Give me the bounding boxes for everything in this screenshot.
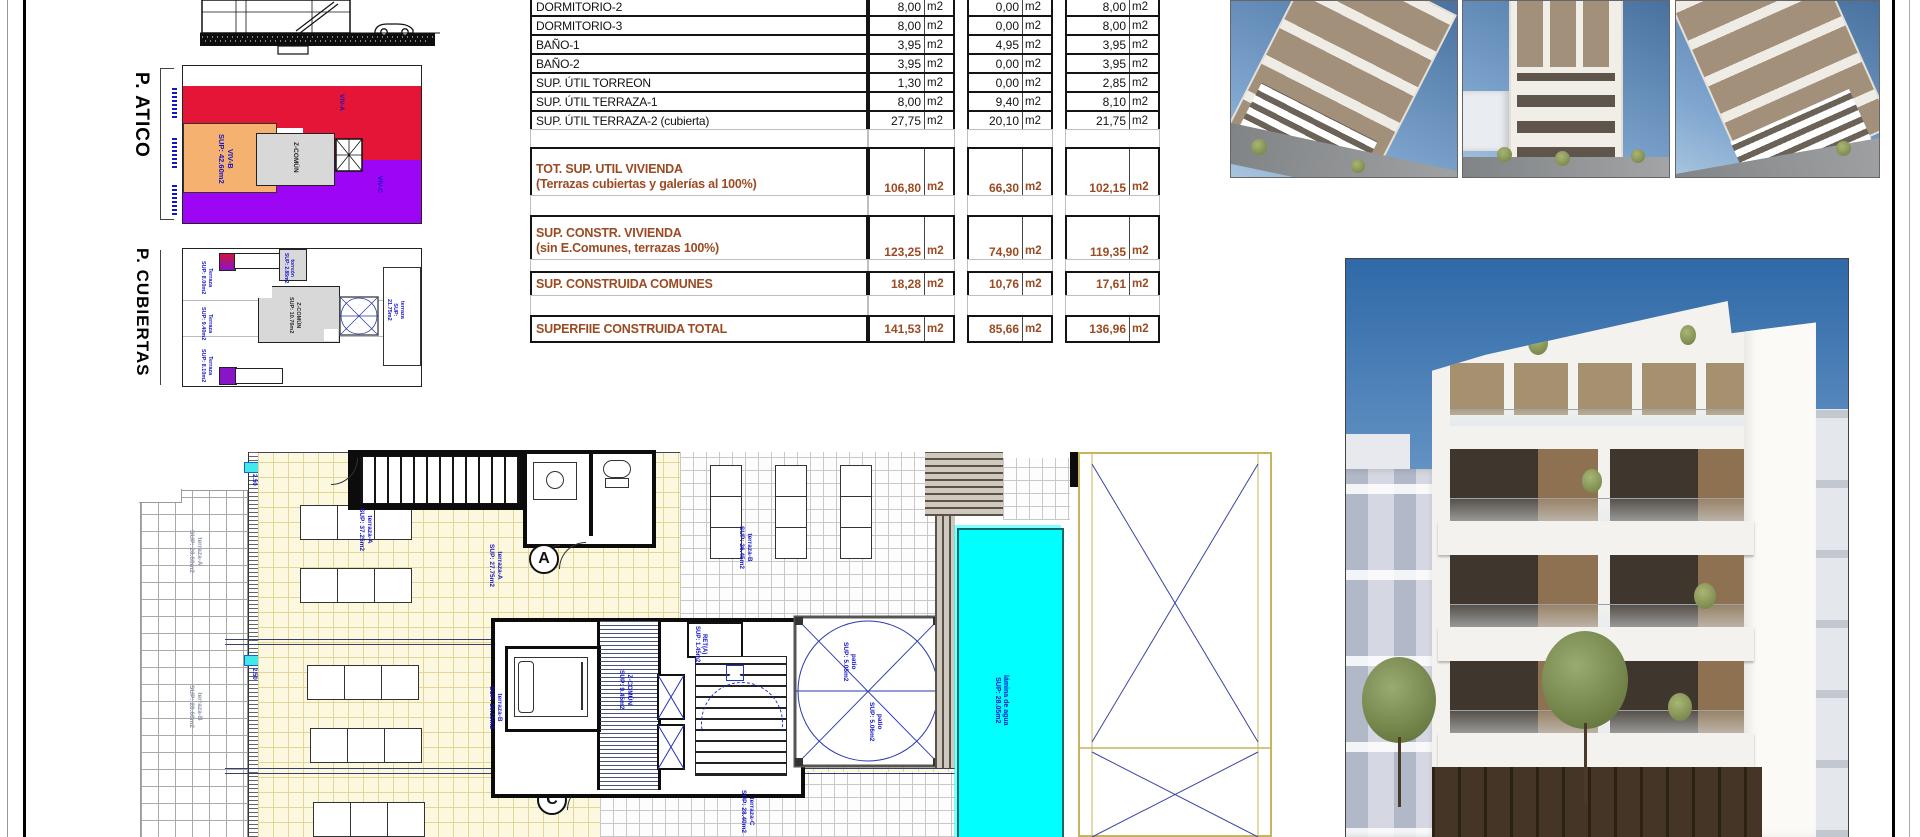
bathroom-top [523,450,656,548]
tree-icon [1582,469,1602,493]
plan-label: terraza-A SUP: 37.25m2 [357,508,373,551]
tree-icon [1631,149,1645,163]
table-total-row: SUPERFIIE CONSTRUIDA TOTAL 141,53m2 85,6… [530,315,1170,343]
facade-render [1345,258,1849,837]
cubiertas-title: P. CUBIERTAS [132,248,152,377]
staircase-top [360,456,520,504]
table-row: SUP. ÚTIL TORREON 1,30m2 0,00m2 2,85m2 [530,72,1170,93]
aerial-render-1 [1230,0,1458,178]
plan-label: terraza-B SUP: 20.15m2 [487,686,503,729]
dimension-tick [172,88,177,118]
roof-label: Terraza SUP: 9.40m2 [200,307,213,340]
viv-c-label: VIV-C [375,176,383,193]
sun-lounger [313,802,425,837]
atico-title: P. ATICO [130,72,152,158]
table-total-row: TOT. SUP. UTIL VIVIENDA (Terrazas cubier… [530,147,1170,197]
atico-color-plan: VIV-A VIV-B SUP: 42.60m2 Z-COMÚN VIV-C [182,65,422,224]
plan-label: Z-COMÚN SUP: 9.45m2 [617,670,633,709]
atico-common-label: Z-COMÚN [291,142,299,173]
pool-deck [925,452,1003,516]
sun-lounger [300,505,412,540]
tree-icon [1251,139,1267,155]
tree-icon [1836,141,1851,156]
plan-label: terraza-B SUP: 26.45m2 [737,526,753,569]
sun-lounger [300,568,412,603]
roof-patio-icon [339,296,379,336]
service-core: Z-COMÚN SUP: 9.45m2 RET(A) SUP: 1.45m2 [491,618,805,798]
architectural-drawing-sheet: P. ATICO VIV-A VIV-B SUP: 42.60m2 Z-COMÚ… [0,0,1920,837]
sheet-border-outer-right [1909,0,1910,837]
aerial-render-3 [1675,0,1880,178]
shower-tray [533,462,577,500]
plan-label: terraza-A SUP: 27.75m2 [487,544,503,587]
tree-icon [1555,151,1570,166]
table-spacer-row [530,195,1170,217]
plan-label: RET(A) SUP: 1.45m2 [693,626,707,662]
building-section-drawing [200,0,440,62]
tree-icon [1497,147,1512,162]
lightwell-strip [1078,452,1272,837]
unit-marker-a: A [529,544,559,574]
pool-deck-side [935,516,955,768]
dimension-tick [172,138,177,168]
table-total-row: SUP. CONSTRUIDA COMUNES 18,28m2 10,76m2 … [530,271,1170,297]
roof-label: terraza SUP: 21.75m2 [385,299,405,321]
plan-label: patio SUP: 5.05m2 [841,642,857,681]
roof-label: Z-COMÚN SUP: 10.76m2 [288,297,301,333]
viv-a-label: VIV-A [337,94,345,111]
surface-area-table: DORMITORIO-2 8,00m2 0,00m2 8,00m2 DORMIT… [530,0,1170,343]
plan-label: 2.50 [250,474,257,486]
plan-label: terraza-C SUP: 28.40m2 [739,790,755,833]
dimension-tick [172,185,177,215]
toilet [603,460,631,478]
elevator-shaft-icon [335,138,363,172]
tree-icon [1351,159,1365,173]
aerial-render-2 [1462,0,1670,178]
table-total-row: SUP. CONSTR. VIVIENDA (sin E.Comunes, te… [530,215,1170,261]
sun-lounger [775,465,807,559]
table-row: BAÑO-2 3,95m2 0,00m2 3,95m2 [530,53,1170,74]
rooftop-terrace [1450,363,1744,415]
cubiertas-roof-plan: Terraza SUP: 8.00m2 Terraza SUP: 9.40m2 … [182,248,422,387]
table-row: DORMITORIO-3 8,00m2 0,00m2 8,00m2 [530,15,1170,36]
shaft-icon [657,724,685,770]
car-icon [375,24,413,35]
viv-b-label: VIV-B SUP: 42.60m2 [217,134,235,184]
sheet-border-outer-left [7,0,8,837]
sheet-border-left [23,0,26,837]
plan-label: 2.50 [250,668,257,680]
atico-bracket [160,68,161,220]
sun-lounger [840,465,872,559]
plan-label: terraza-A SUP: 28.60m2 [187,530,203,573]
sheet-border-right [1892,0,1895,837]
swimming-pool [957,528,1064,837]
sun-lounger [310,728,422,763]
street-tree [1362,657,1436,807]
atico-viv-a-zone [183,86,421,128]
street-tree [1542,631,1628,803]
tree-icon [1528,331,1548,355]
roof-terrace-floor-plan: terraza-A SUP: 28.60m2 terraza-B SUP: 28… [135,450,1275,837]
neighbour-building-right [1816,409,1848,837]
tree-icon [1668,693,1692,721]
elevator-room [505,646,601,732]
table-row: SUP. ÚTIL TERRAZA-2 (cubierta) 27,75m2 2… [530,110,1170,131]
roof-label: torreón SUP: 2.85m2 [283,253,295,283]
plan-label: terraza-B SUP: 28.60m2 [187,685,203,728]
table-row: SUP. ÚTIL TERRAZA-1 8,00m2 9,40m2 8,10m2 [530,91,1170,112]
pool-label: lámina de agua SUP: 28.05m2 [992,675,1009,726]
roof-label: Terraza SUP: 8.10m2 [200,349,213,382]
table-row: BAÑO-1 3,95m2 4,95m2 3,95m2 [530,34,1170,55]
sun-lounger [307,665,419,700]
tree-icon [1680,325,1696,345]
cubiertas-bracket [160,250,161,385]
tree-icon [1694,583,1716,609]
roof-label: Terraza SUP: 8.00m2 [200,261,213,294]
table-spacer-row [530,295,1170,317]
patio-courtyard [793,615,943,768]
plan-label: patio SUP: 5.06m2 [867,702,883,741]
table-spacer-row [530,129,1170,149]
shaft-icon [657,674,685,720]
